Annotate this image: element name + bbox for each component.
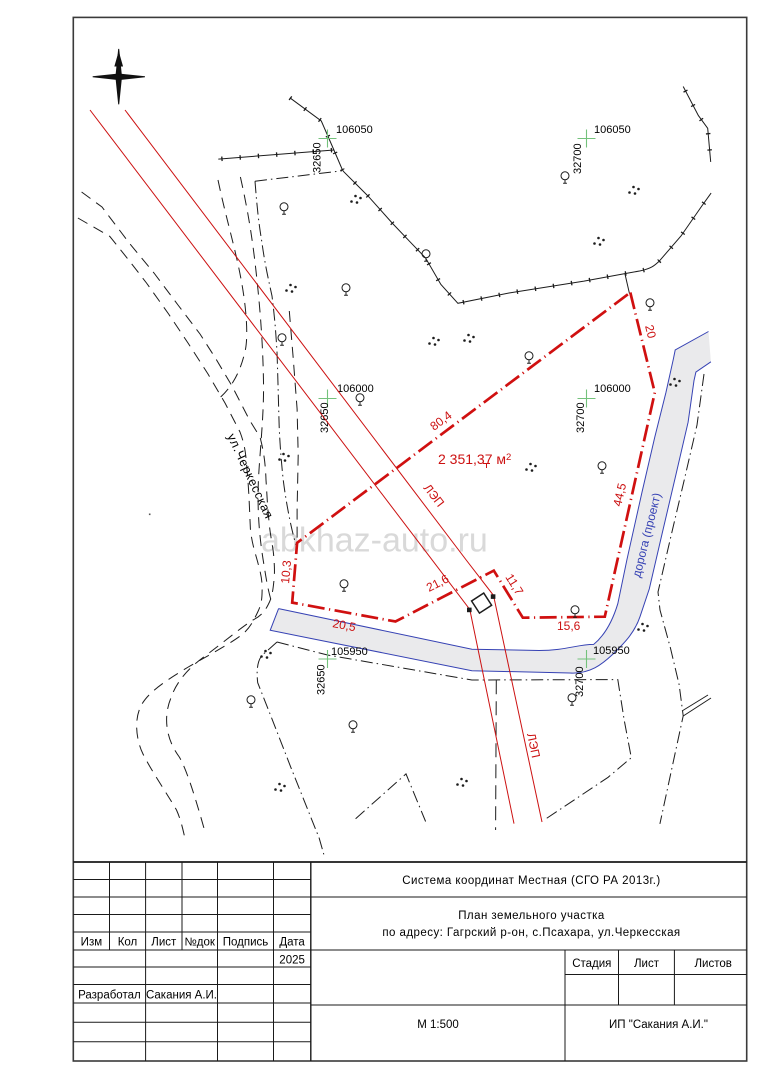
svg-text:32650: 32650 bbox=[319, 402, 331, 433]
svg-text:106000: 106000 bbox=[337, 383, 374, 395]
svg-text:32650: 32650 bbox=[312, 142, 324, 173]
svg-text:Кол: Кол bbox=[118, 937, 138, 949]
svg-text:106050: 106050 bbox=[336, 124, 373, 136]
svg-text:Лист: Лист bbox=[151, 937, 177, 949]
svg-text:ИП "Сакания А.И.": ИП "Сакания А.И." bbox=[609, 1019, 708, 1031]
svg-text:План земельного участка: План земельного участка bbox=[458, 910, 605, 922]
svg-text:32650: 32650 bbox=[316, 664, 328, 695]
svg-text:32700: 32700 bbox=[575, 402, 587, 433]
svg-text:105950: 105950 bbox=[593, 645, 630, 657]
svg-text:15,6: 15,6 bbox=[557, 619, 581, 633]
svg-text:105950: 105950 bbox=[331, 646, 368, 658]
svg-text:Подпись: Подпись bbox=[223, 937, 269, 949]
svg-text:2025: 2025 bbox=[279, 955, 305, 967]
svg-text:2 351,37 м2: 2 351,37 м2 bbox=[438, 451, 511, 467]
svg-text:32700: 32700 bbox=[572, 143, 584, 174]
svg-text:Листов: Листов bbox=[695, 958, 732, 970]
svg-text:106000: 106000 bbox=[594, 383, 631, 395]
svg-text:Разработал: Разработал bbox=[78, 990, 141, 1002]
svg-text:№док: №док bbox=[184, 937, 215, 949]
svg-text:Дата: Дата bbox=[279, 937, 305, 949]
svg-text:Изм: Изм bbox=[81, 937, 103, 949]
svg-text:10,3: 10,3 bbox=[278, 559, 294, 584]
svg-text:106050: 106050 bbox=[594, 124, 631, 136]
svg-text:Лист: Лист bbox=[634, 958, 660, 970]
svg-text:Сакания А.И.: Сакания А.И. bbox=[146, 990, 217, 1002]
svg-text:М 1:500: М 1:500 bbox=[417, 1019, 459, 1031]
svg-text:по адресу: Гагрский р-он, с.Пс: по адресу: Гагрский р-он, с.Псахара, ул.… bbox=[382, 927, 680, 939]
svg-text:32700: 32700 bbox=[574, 666, 586, 697]
svg-text:Система координат Местная (СГО: Система координат Местная (СГО РА 2013г.… bbox=[402, 875, 660, 887]
svg-text:Стадия: Стадия bbox=[572, 958, 611, 970]
